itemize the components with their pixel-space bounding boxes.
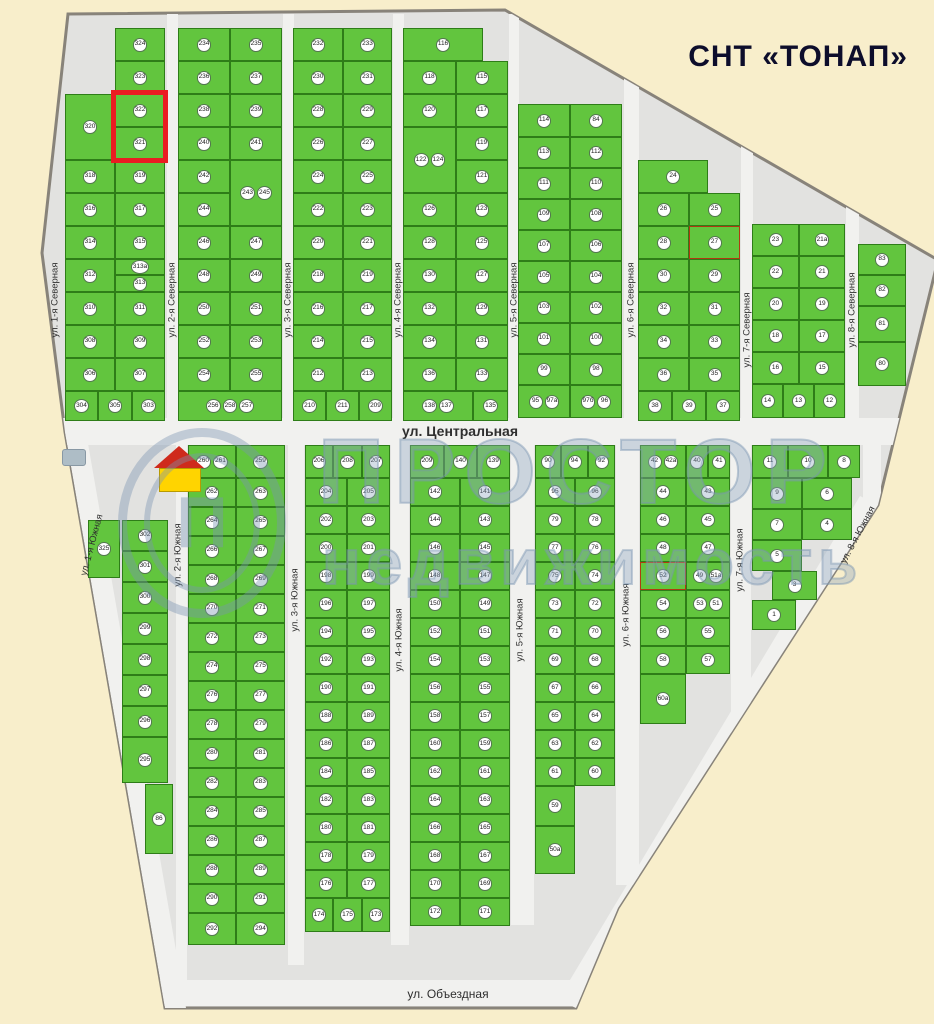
- plot-64[interactable]: 64: [575, 702, 615, 730]
- plot-147[interactable]: 147: [460, 562, 510, 590]
- plot-158[interactable]: 158: [410, 702, 460, 730]
- plot-269[interactable]: 269: [236, 565, 285, 594]
- plot-250[interactable]: 250: [178, 292, 230, 325]
- plot-90[interactable]: 90: [535, 445, 561, 478]
- plot-218[interactable]: 218: [293, 259, 343, 292]
- plot-125[interactable]: 125: [456, 226, 508, 259]
- plot-266[interactable]: 266: [188, 536, 236, 565]
- plot-182[interactable]: 182: [305, 786, 347, 814]
- plot-222[interactable]: 222: [293, 193, 343, 226]
- plot-151[interactable]: 151: [460, 618, 510, 646]
- plot-271[interactable]: 271: [236, 594, 285, 623]
- plot-310[interactable]: 310: [65, 292, 115, 325]
- plot-313[interactable]: 313: [115, 275, 165, 292]
- plot-101[interactable]: 101: [518, 323, 570, 354]
- plot-24[interactable]: 24: [638, 160, 708, 193]
- plot-132[interactable]: 132: [403, 292, 456, 325]
- plot-78[interactable]: 78: [575, 506, 615, 534]
- plot-16[interactable]: 16: [752, 352, 799, 384]
- plot-274[interactable]: 274: [188, 652, 236, 681]
- plot-59[interactable]: 59: [535, 786, 575, 826]
- plot-200[interactable]: 200: [305, 534, 347, 562]
- plot-136[interactable]: 136: [403, 358, 456, 391]
- plot-174[interactable]: 174: [305, 898, 333, 932]
- plot-74[interactable]: 74: [575, 562, 615, 590]
- plot-103[interactable]: 103: [518, 292, 570, 323]
- plot-111[interactable]: 111: [518, 168, 570, 199]
- plot-294[interactable]: 294: [236, 913, 285, 945]
- plot-133[interactable]: 133: [456, 358, 508, 391]
- plot-161[interactable]: 161: [460, 758, 510, 786]
- plot-33[interactable]: 33: [689, 325, 740, 358]
- plot-238[interactable]: 238: [178, 94, 230, 127]
- plot-291[interactable]: 291: [236, 884, 285, 913]
- plot-5[interactable]: 5: [752, 540, 802, 571]
- plot-28[interactable]: 28: [638, 226, 689, 259]
- plot-265[interactable]: 265: [236, 507, 285, 536]
- plot-215[interactable]: 215: [343, 325, 392, 358]
- plot-83[interactable]: 83: [858, 244, 906, 275]
- plot-73[interactable]: 73: [535, 590, 575, 618]
- plot-57[interactable]: 57: [686, 646, 730, 674]
- plot-299[interactable]: 299: [122, 613, 168, 644]
- plot-69[interactable]: 69: [535, 646, 575, 674]
- plot-202[interactable]: 202: [305, 506, 347, 534]
- plot-43[interactable]: 43: [686, 478, 730, 506]
- plot-32[interactable]: 32: [638, 292, 689, 325]
- plot-302[interactable]: 302: [122, 520, 168, 551]
- plot-285[interactable]: 285: [236, 797, 285, 826]
- plot-29[interactable]: 29: [689, 259, 740, 292]
- plot-97б-96[interactable]: 97б96: [570, 385, 622, 418]
- plot-239[interactable]: 239: [230, 94, 282, 127]
- plot-304[interactable]: 304: [65, 391, 98, 421]
- plot-155[interactable]: 155: [460, 674, 510, 702]
- plot-107[interactable]: 107: [518, 230, 570, 261]
- plot-114[interactable]: 114: [518, 104, 570, 137]
- plot-96[interactable]: 96: [575, 478, 615, 506]
- plot-319[interactable]: 319: [115, 160, 165, 193]
- plot-237[interactable]: 237: [230, 61, 282, 94]
- plot-34[interactable]: 34: [638, 325, 689, 358]
- plot-173[interactable]: 173: [362, 898, 390, 932]
- plot-191[interactable]: 191: [347, 674, 390, 702]
- plot-68[interactable]: 68: [575, 646, 615, 674]
- plot-228[interactable]: 228: [293, 94, 343, 127]
- plot-171[interactable]: 171: [460, 898, 510, 926]
- plot-115[interactable]: 115: [456, 61, 508, 94]
- plot-152[interactable]: 152: [410, 618, 460, 646]
- plot-318[interactable]: 318: [65, 160, 115, 193]
- plot-295[interactable]: 295: [122, 737, 168, 783]
- plot-11[interactable]: 11: [752, 445, 788, 478]
- plot-146[interactable]: 146: [410, 534, 460, 562]
- plot-42-42а[interactable]: 4242а: [640, 445, 686, 478]
- plot-252[interactable]: 252: [178, 325, 230, 358]
- plot-176[interactable]: 176: [305, 870, 347, 898]
- plot-120[interactable]: 120: [403, 94, 456, 127]
- plot-273[interactable]: 273: [236, 623, 285, 652]
- plot-284[interactable]: 284: [188, 797, 236, 826]
- plot-242[interactable]: 242: [178, 160, 230, 193]
- plot-3[interactable]: 3: [772, 571, 817, 600]
- plot-99[interactable]: 99: [518, 354, 570, 385]
- plot-104[interactable]: 104: [570, 261, 622, 292]
- plot-209[interactable]: 209: [410, 445, 444, 478]
- plot-195[interactable]: 195: [347, 618, 390, 646]
- plot-320[interactable]: 320: [65, 94, 115, 160]
- plot-119[interactable]: 119: [456, 127, 508, 160]
- plot-37[interactable]: 37: [706, 391, 740, 421]
- plot-56[interactable]: 56: [640, 618, 686, 646]
- plot-50а[interactable]: 50а: [535, 826, 575, 874]
- plot-63[interactable]: 63: [535, 730, 575, 758]
- plot-193[interactable]: 193: [347, 646, 390, 674]
- plot-153[interactable]: 153: [460, 646, 510, 674]
- plot-77[interactable]: 77: [535, 534, 575, 562]
- plot-220[interactable]: 220: [293, 226, 343, 259]
- plot-141[interactable]: 141: [460, 478, 510, 506]
- plot-179[interactable]: 179: [347, 842, 390, 870]
- plot-21а[interactable]: 21а: [799, 224, 845, 256]
- plot-178[interactable]: 178: [305, 842, 347, 870]
- plot-300[interactable]: 300: [122, 582, 168, 613]
- plot-170[interactable]: 170: [410, 870, 460, 898]
- plot-82[interactable]: 82: [858, 275, 906, 306]
- plot-92[interactable]: 92: [588, 445, 615, 478]
- plot-168[interactable]: 168: [410, 842, 460, 870]
- plot-54[interactable]: 54: [640, 590, 686, 618]
- plot-185[interactable]: 185: [347, 758, 390, 786]
- plot-288[interactable]: 288: [188, 855, 236, 884]
- plot-235[interactable]: 235: [230, 28, 282, 61]
- highlighted-plots-box[interactable]: [111, 90, 168, 163]
- plot-306[interactable]: 306: [65, 358, 115, 391]
- plot-184[interactable]: 184: [305, 758, 347, 786]
- plot-314[interactable]: 314: [65, 226, 115, 259]
- plot-18[interactable]: 18: [752, 320, 799, 352]
- plot-30[interactable]: 30: [638, 259, 689, 292]
- plot-236[interactable]: 236: [178, 61, 230, 94]
- plot-49-51а[interactable]: 4951а: [686, 562, 730, 590]
- plot-86[interactable]: 86: [145, 784, 173, 854]
- plot-40[interactable]: 40: [686, 445, 708, 478]
- plot-39[interactable]: 39: [672, 391, 706, 421]
- plot-35[interactable]: 35: [689, 358, 740, 391]
- plot-216[interactable]: 216: [293, 292, 343, 325]
- plot-131[interactable]: 131: [456, 325, 508, 358]
- plot-305[interactable]: 305: [98, 391, 132, 421]
- plot-65[interactable]: 65: [535, 702, 575, 730]
- plot-204[interactable]: 204: [305, 478, 347, 506]
- plot-61[interactable]: 61: [535, 758, 575, 786]
- plot-95[interactable]: 95: [535, 478, 575, 506]
- plot-172[interactable]: 172: [410, 898, 460, 926]
- plot-143[interactable]: 143: [460, 506, 510, 534]
- plot-79[interactable]: 79: [535, 506, 575, 534]
- plot-12[interactable]: 12: [814, 384, 845, 418]
- plot-70[interactable]: 70: [575, 618, 615, 646]
- plot-165[interactable]: 165: [460, 814, 510, 842]
- plot-142[interactable]: 142: [410, 478, 460, 506]
- plot-13[interactable]: 13: [783, 384, 814, 418]
- plot-105[interactable]: 105: [518, 261, 570, 292]
- plot-292[interactable]: 292: [188, 913, 236, 945]
- plot-247[interactable]: 247: [230, 226, 282, 259]
- plot-94[interactable]: 94: [561, 445, 588, 478]
- plot-192[interactable]: 192: [305, 646, 347, 674]
- plot-72[interactable]: 72: [575, 590, 615, 618]
- plot-160[interactable]: 160: [410, 730, 460, 758]
- plot-31[interactable]: 31: [689, 292, 740, 325]
- plot-27[interactable]: 27: [689, 226, 740, 259]
- plot-301[interactable]: 301: [122, 551, 168, 582]
- plot-116[interactable]: 116: [403, 28, 483, 61]
- plot-263[interactable]: 263: [236, 478, 285, 507]
- plot-311[interactable]: 311: [115, 292, 165, 325]
- plot-118[interactable]: 118: [403, 61, 456, 94]
- plot-95-97а[interactable]: 9597а: [518, 385, 570, 418]
- plot-117[interactable]: 117: [456, 94, 508, 127]
- plot-128[interactable]: 128: [403, 226, 456, 259]
- plot-109[interactable]: 109: [518, 199, 570, 230]
- plot-267[interactable]: 267: [236, 536, 285, 565]
- plot-203[interactable]: 203: [347, 506, 390, 534]
- plot-164[interactable]: 164: [410, 786, 460, 814]
- plot-297[interactable]: 297: [122, 675, 168, 706]
- plot-324[interactable]: 324: [115, 28, 165, 61]
- plot-206[interactable]: 206: [305, 445, 333, 478]
- plot-187[interactable]: 187: [347, 730, 390, 758]
- plot-315[interactable]: 315: [115, 226, 165, 259]
- plot-55[interactable]: 55: [686, 618, 730, 646]
- plot-67[interactable]: 67: [535, 674, 575, 702]
- plot-25[interactable]: 25: [689, 193, 740, 226]
- plot-270[interactable]: 270: [188, 594, 236, 623]
- plot-197[interactable]: 197: [347, 590, 390, 618]
- plot-8[interactable]: 8: [828, 445, 860, 478]
- plot-19[interactable]: 19: [799, 288, 845, 320]
- plot-303[interactable]: 303: [132, 391, 165, 421]
- plot-231[interactable]: 231: [343, 61, 392, 94]
- plot-148[interactable]: 148: [410, 562, 460, 590]
- plot-134[interactable]: 134: [403, 325, 456, 358]
- plot-53-51[interactable]: 5351: [686, 590, 730, 618]
- plot-259[interactable]: 259: [236, 445, 285, 478]
- plot-217[interactable]: 217: [343, 292, 392, 325]
- plot-313а[interactable]: 313а: [115, 259, 165, 275]
- plot-316[interactable]: 316: [65, 193, 115, 226]
- plot-23[interactable]: 23: [752, 224, 799, 256]
- plot-130[interactable]: 130: [403, 259, 456, 292]
- plot-22[interactable]: 22: [752, 256, 799, 288]
- plot-234[interactable]: 234: [178, 28, 230, 61]
- plot-52[interactable]: 52: [640, 562, 686, 590]
- plot-163[interactable]: 163: [460, 786, 510, 814]
- plot-289[interactable]: 289: [236, 855, 285, 884]
- plot-194[interactable]: 194: [305, 618, 347, 646]
- plot-169[interactable]: 169: [460, 870, 510, 898]
- plot-208[interactable]: 208: [333, 445, 362, 478]
- plot-198[interactable]: 198: [305, 562, 347, 590]
- plot-129[interactable]: 129: [456, 292, 508, 325]
- plot-230[interactable]: 230: [293, 61, 343, 94]
- plot-76[interactable]: 76: [575, 534, 615, 562]
- plot-75[interactable]: 75: [535, 562, 575, 590]
- plot-180[interactable]: 180: [305, 814, 347, 842]
- plot-14[interactable]: 14: [752, 384, 783, 418]
- plot-62[interactable]: 62: [575, 730, 615, 758]
- plot-209[interactable]: 209: [359, 391, 392, 421]
- plot-41[interactable]: 41: [708, 445, 730, 478]
- plot-17[interactable]: 17: [799, 320, 845, 352]
- plot-282[interactable]: 282: [188, 768, 236, 797]
- plot-309[interactable]: 309: [115, 325, 165, 358]
- plot-100[interactable]: 100: [570, 323, 622, 354]
- plot-243-245[interactable]: 243245: [230, 160, 282, 226]
- plot-256-258-257[interactable]: 256258257: [178, 391, 282, 421]
- plot-44[interactable]: 44: [640, 478, 686, 506]
- plot-189[interactable]: 189: [347, 702, 390, 730]
- plot-223[interactable]: 223: [343, 193, 392, 226]
- plot-283[interactable]: 283: [236, 768, 285, 797]
- plot-199[interactable]: 199: [347, 562, 390, 590]
- plot-272[interactable]: 272: [188, 623, 236, 652]
- plot-279[interactable]: 279: [236, 710, 285, 739]
- plot-251[interactable]: 251: [230, 292, 282, 325]
- plot-264[interactable]: 264: [188, 507, 236, 536]
- plot-4[interactable]: 4: [802, 509, 852, 540]
- plot-1[interactable]: 1: [752, 600, 796, 630]
- plot-280[interactable]: 280: [188, 739, 236, 768]
- plot-201[interactable]: 201: [347, 534, 390, 562]
- plot-278[interactable]: 278: [188, 710, 236, 739]
- plot-224[interactable]: 224: [293, 160, 343, 193]
- plot-181[interactable]: 181: [347, 814, 390, 842]
- plot-227[interactable]: 227: [343, 127, 392, 160]
- plot-246[interactable]: 246: [178, 226, 230, 259]
- plot-9[interactable]: 9: [752, 478, 802, 509]
- plot-123[interactable]: 123: [456, 193, 508, 226]
- plot-127[interactable]: 127: [456, 259, 508, 292]
- plot-212[interactable]: 212: [293, 358, 343, 391]
- plot-106[interactable]: 106: [570, 230, 622, 261]
- plot-219[interactable]: 219: [343, 259, 392, 292]
- plot-229[interactable]: 229: [343, 94, 392, 127]
- plot-317[interactable]: 317: [115, 193, 165, 226]
- plot-15[interactable]: 15: [799, 352, 845, 384]
- plot-312[interactable]: 312: [65, 259, 115, 292]
- plot-138-137[interactable]: 138137: [403, 391, 473, 421]
- plot-244[interactable]: 244: [178, 193, 230, 226]
- plot-205[interactable]: 205: [347, 478, 390, 506]
- plot-6[interactable]: 6: [802, 478, 852, 509]
- plot-126[interactable]: 126: [403, 193, 456, 226]
- plot-47[interactable]: 47: [686, 534, 730, 562]
- plot-140[interactable]: 140: [444, 445, 477, 478]
- plot-46[interactable]: 46: [640, 506, 686, 534]
- plot-26[interactable]: 26: [638, 193, 689, 226]
- plot-60[interactable]: 60: [575, 758, 615, 786]
- plot-7[interactable]: 7: [752, 509, 802, 540]
- plot-307[interactable]: 307: [115, 358, 165, 391]
- plot-183[interactable]: 183: [347, 786, 390, 814]
- plot-36[interactable]: 36: [638, 358, 689, 391]
- plot-149[interactable]: 149: [460, 590, 510, 618]
- plot-38[interactable]: 38: [638, 391, 672, 421]
- plot-281[interactable]: 281: [236, 739, 285, 768]
- plot-21[interactable]: 21: [799, 256, 845, 288]
- plot-290[interactable]: 290: [188, 884, 236, 913]
- plot-167[interactable]: 167: [460, 842, 510, 870]
- plot-150[interactable]: 150: [410, 590, 460, 618]
- plot-226[interactable]: 226: [293, 127, 343, 160]
- plot-286[interactable]: 286: [188, 826, 236, 855]
- plot-108[interactable]: 108: [570, 199, 622, 230]
- plot-48[interactable]: 48: [640, 534, 686, 562]
- plot-308[interactable]: 308: [65, 325, 115, 358]
- plot-221[interactable]: 221: [343, 226, 392, 259]
- plot-210[interactable]: 210: [293, 391, 326, 421]
- plot-10[interactable]: 10: [788, 445, 828, 478]
- plot-113[interactable]: 113: [518, 137, 570, 168]
- plot-66[interactable]: 66: [575, 674, 615, 702]
- plot-225[interactable]: 225: [343, 160, 392, 193]
- plot-112[interactable]: 112: [570, 137, 622, 168]
- plot-296[interactable]: 296: [122, 706, 168, 737]
- plot-276[interactable]: 276: [188, 681, 236, 710]
- plot-102[interactable]: 102: [570, 292, 622, 323]
- plot-84[interactable]: 84: [570, 104, 622, 137]
- plot-240[interactable]: 240: [178, 127, 230, 160]
- plot-249[interactable]: 249: [230, 259, 282, 292]
- plot-214[interactable]: 214: [293, 325, 343, 358]
- plot-298[interactable]: 298: [122, 644, 168, 675]
- plot-144[interactable]: 144: [410, 506, 460, 534]
- plot-135[interactable]: 135: [473, 391, 508, 421]
- plot-81[interactable]: 81: [858, 306, 906, 342]
- plot-211[interactable]: 211: [326, 391, 359, 421]
- plot-58[interactable]: 58: [640, 646, 686, 674]
- plot-156[interactable]: 156: [410, 674, 460, 702]
- plot-139[interactable]: 139: [477, 445, 510, 478]
- plot-287[interactable]: 287: [236, 826, 285, 855]
- plot-253[interactable]: 253: [230, 325, 282, 358]
- plot-145[interactable]: 145: [460, 534, 510, 562]
- plot-190[interactable]: 190: [305, 674, 347, 702]
- plot-196[interactable]: 196: [305, 590, 347, 618]
- plot-159[interactable]: 159: [460, 730, 510, 758]
- plot-275[interactable]: 275: [236, 652, 285, 681]
- plot-268[interactable]: 268: [188, 565, 236, 594]
- plot-188[interactable]: 188: [305, 702, 347, 730]
- plot-177[interactable]: 177: [347, 870, 390, 898]
- plot-207[interactable]: 207: [362, 445, 390, 478]
- plot-122-124[interactable]: 122124: [403, 127, 456, 193]
- plot-254[interactable]: 254: [178, 358, 230, 391]
- plot-110[interactable]: 110: [570, 168, 622, 199]
- plot-213[interactable]: 213: [343, 358, 392, 391]
- plot-157[interactable]: 157: [460, 702, 510, 730]
- plot-277[interactable]: 277: [236, 681, 285, 710]
- plot-98[interactable]: 98: [570, 354, 622, 385]
- plot-175[interactable]: 175: [333, 898, 362, 932]
- plot-80[interactable]: 80: [858, 342, 906, 386]
- plot-162[interactable]: 162: [410, 758, 460, 786]
- plot-233[interactable]: 233: [343, 28, 392, 61]
- plot-45[interactable]: 45: [686, 506, 730, 534]
- plot-232[interactable]: 232: [293, 28, 343, 61]
